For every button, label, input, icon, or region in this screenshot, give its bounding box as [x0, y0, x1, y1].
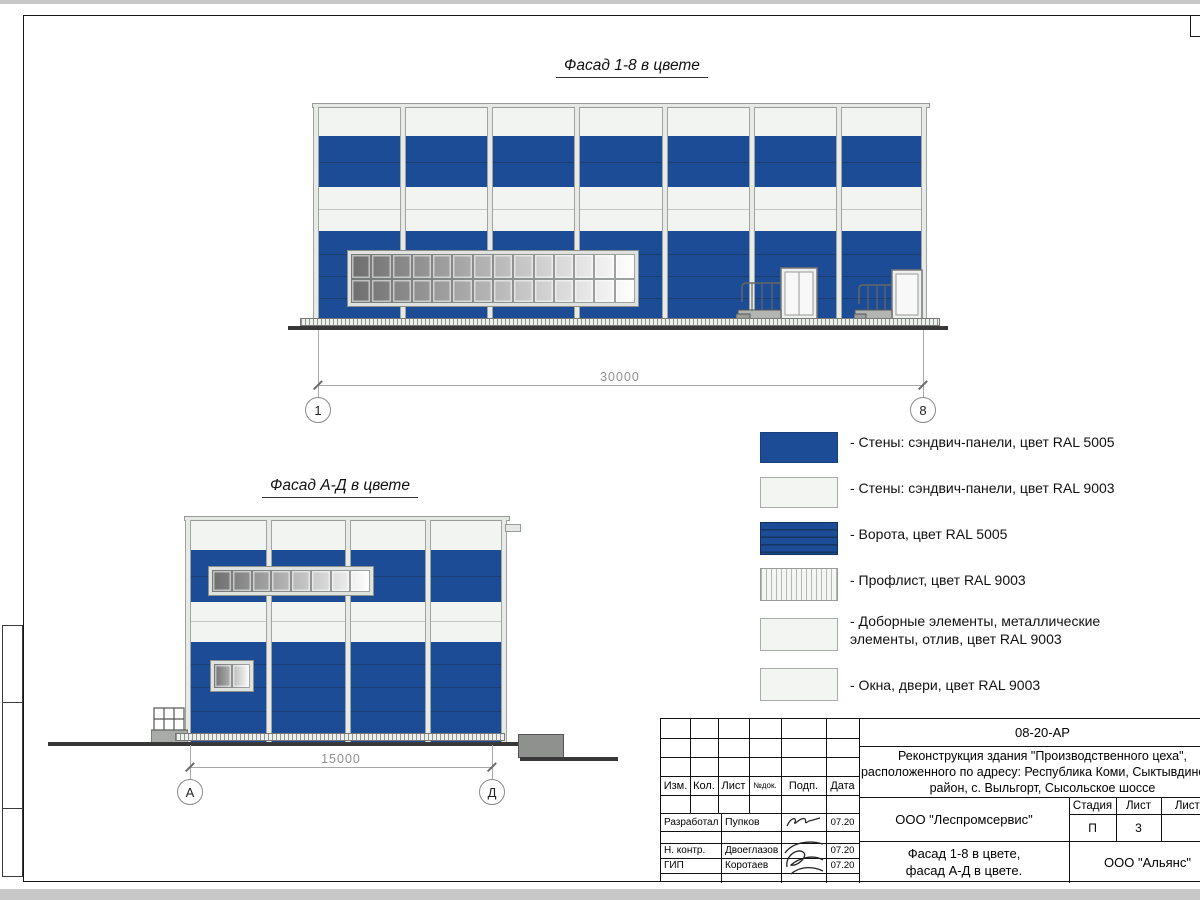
stage-label: Стадия — [1069, 797, 1116, 814]
window-pane — [351, 254, 371, 279]
col-header-izm: Изм. — [661, 776, 690, 795]
window-pane — [232, 570, 252, 592]
facade-a-d-drawing — [187, 520, 505, 742]
legend-swatch-wall-white — [760, 477, 838, 508]
col-header-list: Лист — [718, 776, 749, 795]
name-gip: Коротаев — [722, 858, 781, 873]
window-pane — [311, 570, 331, 592]
legend-swatch-windows-doors — [760, 668, 838, 701]
window-pane — [513, 279, 533, 304]
window-pane — [432, 279, 452, 304]
ribbon-window — [348, 251, 638, 306]
ground-line — [520, 757, 618, 761]
col-header-kol: Кол. — [690, 776, 718, 795]
stage-value: П — [1069, 814, 1116, 841]
legend-swatch-proflist — [760, 568, 838, 601]
document-number: 08-20-АР — [859, 719, 1200, 746]
window-pane — [212, 570, 232, 592]
facade-a-d-title: Фасад А-Д в цвете — [250, 477, 430, 498]
window-pane — [350, 570, 370, 592]
dimension-line — [318, 385, 923, 386]
frame-side-box — [2, 808, 23, 877]
project-name: Реконструкция здания "Производственного … — [859, 746, 1200, 797]
ribbon-window — [209, 567, 373, 595]
window-pane — [534, 254, 554, 279]
legend-label: - Профлист, цвет RAL 9003 — [850, 572, 1200, 588]
window-pane — [513, 254, 533, 279]
window-pane — [493, 254, 513, 279]
ground-line — [288, 326, 948, 330]
dimension-value: 30000 — [560, 370, 680, 384]
drawing-title-line: фасад А-Д в цвете. — [906, 862, 1022, 879]
window-pane — [594, 254, 614, 279]
name-ncontrol: Двоеглазов — [722, 843, 781, 858]
contractor-company: ООО "Леспромсервис" — [859, 797, 1069, 841]
window-pane — [252, 570, 272, 592]
legend-swatch-wall-blue — [760, 432, 838, 463]
window-pane — [594, 279, 614, 304]
window-pane — [371, 279, 391, 304]
sheet-value: 3 — [1116, 814, 1161, 841]
project-name-line: район, с. Выльгорт, Сысольское шоссе — [930, 780, 1156, 796]
window-pane — [271, 570, 291, 592]
axis-bubble-a: А — [177, 779, 203, 805]
mullion — [425, 520, 431, 742]
axis-bubble-1: 1 — [305, 397, 331, 423]
facade-1-8-drawing — [315, 107, 925, 318]
ground-step — [518, 734, 564, 758]
window-pane — [432, 254, 452, 279]
mullion — [501, 520, 507, 742]
window-pane — [574, 254, 594, 279]
ground-line — [48, 742, 522, 746]
mullion — [662, 107, 668, 318]
drawing-title: Фасад 1-8 в цвете, фасад А-Д в цвете. — [859, 841, 1069, 883]
gutter-outlet — [505, 524, 521, 532]
role-gip: ГИП — [661, 858, 721, 873]
window-pane — [554, 279, 574, 304]
extension-line — [318, 330, 319, 398]
dimension-value: 15000 — [281, 752, 401, 766]
sheets-label: Листов — [1161, 797, 1200, 814]
mullion — [836, 107, 842, 318]
date-developer: 07.20 — [826, 813, 859, 831]
window-pane — [493, 279, 513, 304]
entrance-door-with-stairs — [854, 264, 934, 319]
window-pane — [371, 254, 391, 279]
role-developer: Разработал — [661, 813, 721, 831]
window-pane — [554, 254, 574, 279]
axis-label: 1 — [314, 403, 321, 418]
drawing-title-line: Фасад 1-8 в цвете, — [908, 845, 1021, 862]
window-pane — [392, 279, 412, 304]
frame-side-box — [2, 702, 23, 809]
window-pane — [473, 279, 493, 304]
small-window — [211, 661, 253, 691]
window-pane — [214, 664, 232, 688]
legend-label: - Окна, двери, цвет RAL 9003 — [850, 677, 1200, 693]
signature-icon — [777, 837, 831, 879]
mullion — [313, 107, 319, 318]
window-pane — [351, 279, 371, 304]
axis-label: Д — [488, 785, 497, 800]
window-pane — [412, 254, 432, 279]
window-pane — [412, 279, 432, 304]
window-pane — [392, 254, 412, 279]
name-developer: Пупков — [722, 813, 781, 831]
role-ncontrol: Н. контр. — [661, 843, 721, 858]
col-header-ndoc: №док. — [749, 776, 781, 795]
col-header-podp: Подп. — [781, 776, 826, 795]
extension-line — [923, 330, 924, 398]
dimension-line — [190, 767, 492, 768]
frame-corner-box — [1190, 15, 1200, 37]
window-pane — [232, 664, 250, 688]
panel-joint — [316, 209, 924, 210]
legend-swatch-gate — [760, 522, 838, 555]
window-pane — [473, 254, 493, 279]
axis-label: 8 — [919, 403, 926, 418]
mullion — [266, 520, 272, 742]
window-pane — [615, 254, 635, 279]
design-organization: ООО "Альянс" — [1069, 841, 1200, 883]
legend-label: - Ворота, цвет RAL 5005 — [850, 526, 1200, 542]
axis-bubble-8: 8 — [910, 397, 936, 423]
legend-label: - Стены: сэндвич-панели, цвет RAL 9003 — [850, 480, 1200, 496]
legend-label: - Стены: сэндвич-панели, цвет RAL 5005 — [850, 434, 1200, 450]
signature-icon — [783, 814, 824, 831]
project-name-line: Реконструкция здания "Производственного … — [898, 748, 1187, 764]
window-pane — [615, 279, 635, 304]
frame-side-box — [2, 625, 23, 703]
axis-label: А — [186, 785, 195, 800]
legend-swatch-trim — [760, 618, 838, 651]
window-pane — [331, 570, 351, 592]
col-header-data: Дата — [826, 776, 859, 795]
drawing-canvas: Фасад 1-8 в цвете — [0, 0, 1200, 900]
window-pane — [452, 254, 472, 279]
project-name-line: расположенного по адресу: Республика Ком… — [861, 764, 1200, 780]
window-pane — [574, 279, 594, 304]
plinth-proflist-strip — [175, 733, 505, 741]
plinth-proflist-strip — [300, 318, 940, 326]
axis-bubble-d: Д — [479, 779, 505, 805]
legend-label: - Доборные элементы, металлические элеме… — [850, 612, 1200, 648]
window-pane — [534, 279, 554, 304]
facade-1-8-title: Фасад 1-8 в цвете — [462, 57, 802, 78]
sheet-label: Лист — [1116, 797, 1161, 814]
entrance-door-with-stairs — [736, 258, 828, 319]
window-pane — [291, 570, 311, 592]
mullion — [345, 520, 351, 742]
panel-joint — [316, 162, 924, 163]
window-pane — [452, 279, 472, 304]
title-block: Изм. Кол. Лист №док. Подп. Дата Разработ… — [660, 718, 1200, 882]
